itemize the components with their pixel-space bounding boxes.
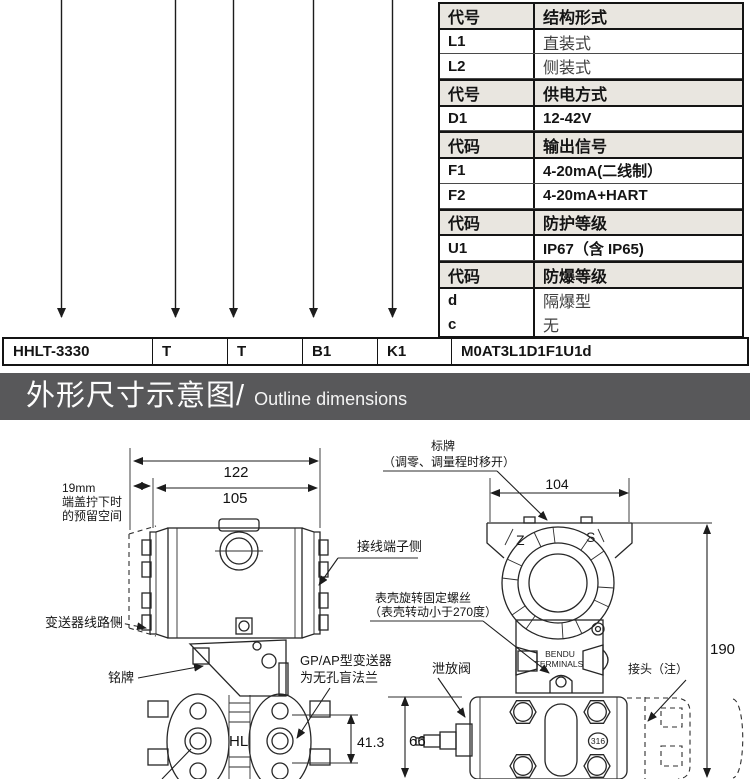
- spec-row: F2 4-20mA+HART: [440, 184, 742, 209]
- model-cell-1: T: [152, 339, 227, 364]
- housing-cover-front: [502, 527, 614, 639]
- spec-code-cell: 代号: [440, 81, 533, 105]
- connector-note-label: 接头（注）: [628, 661, 688, 676]
- left-side-view-drawing: 122 105 19mm 端盖拧下时 的预留空间: [45, 448, 422, 779]
- spec-desc-cell: 4-20mA+HART: [533, 184, 742, 208]
- dim-41-3-label: 41.3: [357, 734, 384, 750]
- circuit-side-label: 变送器线路侧: [45, 615, 123, 630]
- spec-row: F1 4-20mA(二线制）: [440, 159, 742, 184]
- dim-190-label: 190: [710, 641, 735, 658]
- reserved-space-line2: 端盖拧下时: [62, 495, 122, 509]
- spec-header-row: 代码 防护等级: [440, 209, 742, 237]
- spec-code-cell: c: [440, 312, 533, 336]
- process-flange: 316: [416, 697, 743, 779]
- tag-plate-label: 标牌 （调零、调量程时移开）: [383, 439, 515, 469]
- section-banner: 外形尺寸示意图/ Outline dimensions: [0, 373, 750, 420]
- nameplate-label: 铭牌: [108, 670, 134, 685]
- spec-code-cell: F1: [440, 159, 533, 183]
- model-number-row: HHLT-3330 T T B1 K1 M0AT3L1D1F1U1d: [2, 337, 749, 366]
- tag-plate-line2: （调零、调量程时移开）: [383, 454, 515, 469]
- dim-122-label: 122: [223, 464, 248, 481]
- right-front-view-drawing: 标牌 （调零、调量程时移开） 104 Z S: [369, 439, 743, 779]
- spec-header-row: 代号 结构形式: [440, 4, 742, 30]
- spec-code-cell: 代码: [440, 211, 533, 235]
- spec-desc-cell: 12-42V: [533, 107, 742, 131]
- spec-code-cell: L2: [440, 54, 533, 78]
- case-screw-line2: （表壳转动小于270度）: [369, 604, 497, 619]
- spec-header-row: 代号 供电方式: [440, 79, 742, 107]
- blind-flange-line1: GP/AP型变送器: [300, 653, 392, 668]
- ordering-selection-arrows: [0, 0, 438, 337]
- spec-row: L1 直装式: [440, 30, 742, 55]
- spec-code-cell: 代码: [440, 133, 533, 157]
- model-cell-3: B1: [302, 339, 377, 364]
- spec-desc-cell: 供电方式: [533, 81, 742, 105]
- section-title-en: Outline dimensions: [254, 389, 407, 410]
- spec-desc-cell: 输出信号: [533, 133, 742, 157]
- spec-desc-cell: 隔爆型: [533, 289, 742, 313]
- model-cell-suffix: M0AT3L1D1F1U1d: [451, 339, 747, 364]
- spec-desc-cell: 结构形式: [533, 4, 742, 28]
- material-316-label: 316: [591, 736, 605, 746]
- spec-row: c 无: [440, 312, 742, 336]
- tag-plate-line1: 标牌: [431, 439, 455, 453]
- section-title-zh: 外形尺寸示意图/: [26, 373, 245, 420]
- model-cell-2: T: [227, 339, 302, 364]
- blind-flange-note: GP/AP型变送器 为无孔盲法兰: [300, 653, 392, 685]
- connector-adapter-dashed: [627, 697, 743, 779]
- zero-adjust-mark: Z: [516, 532, 525, 548]
- nameplate-bracket: [190, 640, 288, 696]
- spec-row: d 隔爆型: [440, 289, 742, 313]
- reserved-space-line1: 19mm: [62, 481, 95, 495]
- terminal-side-label: 接线端子侧: [357, 539, 422, 554]
- dim-105-label: 105: [222, 490, 247, 507]
- case-screw-line1: 表壳旋转固定螺丝: [375, 590, 471, 605]
- spec-code-cell: D1: [440, 107, 533, 131]
- spec-code-cell: U1: [440, 236, 533, 260]
- case-screw-label: 表壳旋转固定螺丝 （表壳转动小于270度）: [369, 590, 497, 619]
- spec-desc-cell: 无: [533, 312, 742, 336]
- spec-desc-cell: 侧装式: [533, 54, 742, 78]
- spec-desc-cell: 4-20mA(二线制）: [533, 159, 742, 183]
- reserved-space-line3: 的预留空间: [62, 508, 122, 523]
- spec-desc-cell: 直装式: [533, 30, 742, 54]
- dim-104-label: 104: [545, 476, 569, 492]
- conduit-connection: [215, 519, 263, 570]
- blind-flange-line2: 为无孔盲法兰: [300, 670, 378, 685]
- spec-row: L2 侧装式: [440, 54, 742, 79]
- spec-header-row: 代码 防爆等级: [440, 261, 742, 289]
- spec-code-cell: F2: [440, 184, 533, 208]
- dim-66-label: 66: [409, 733, 426, 750]
- transmitter-datasheet-page: 代号 结构形式 L1 直装式 L2 侧装式 代号 供电方式 D1 12-42V …: [0, 0, 750, 779]
- outline-dimension-drawings: 122 105 19mm 端盖拧下时 的预留空间: [0, 421, 750, 779]
- spec-code-cell: 代号: [440, 4, 533, 28]
- spec-code-cell: L1: [440, 30, 533, 54]
- ordering-code-table: 代号 结构形式 L1 直装式 L2 侧装式 代号 供电方式 D1 12-42V …: [438, 2, 744, 338]
- hl-dimension-label: HL: [229, 733, 248, 750]
- spec-desc-cell: 防护等级: [533, 211, 742, 235]
- model-cell-4: K1: [377, 339, 451, 364]
- terminals-text-line1: BENDU: [545, 649, 575, 659]
- spec-code-cell: 代码: [440, 263, 533, 287]
- drain-valve-label: 泄放阀: [432, 661, 471, 676]
- transmitter-housing: [142, 519, 328, 638]
- spec-row: D1 12-42V: [440, 107, 742, 132]
- reserved-space-label: 19mm 端盖拧下时 的预留空间: [62, 481, 122, 523]
- spec-desc-cell: IP67（含 IP65): [533, 236, 742, 260]
- spec-row: U1 IP67（含 IP65): [440, 236, 742, 261]
- spec-code-cell: d: [440, 289, 533, 313]
- model-cell-base: HHLT-3330: [4, 339, 152, 364]
- spec-desc-cell: 防爆等级: [533, 263, 742, 287]
- spec-header-row: 代码 输出信号: [440, 131, 742, 159]
